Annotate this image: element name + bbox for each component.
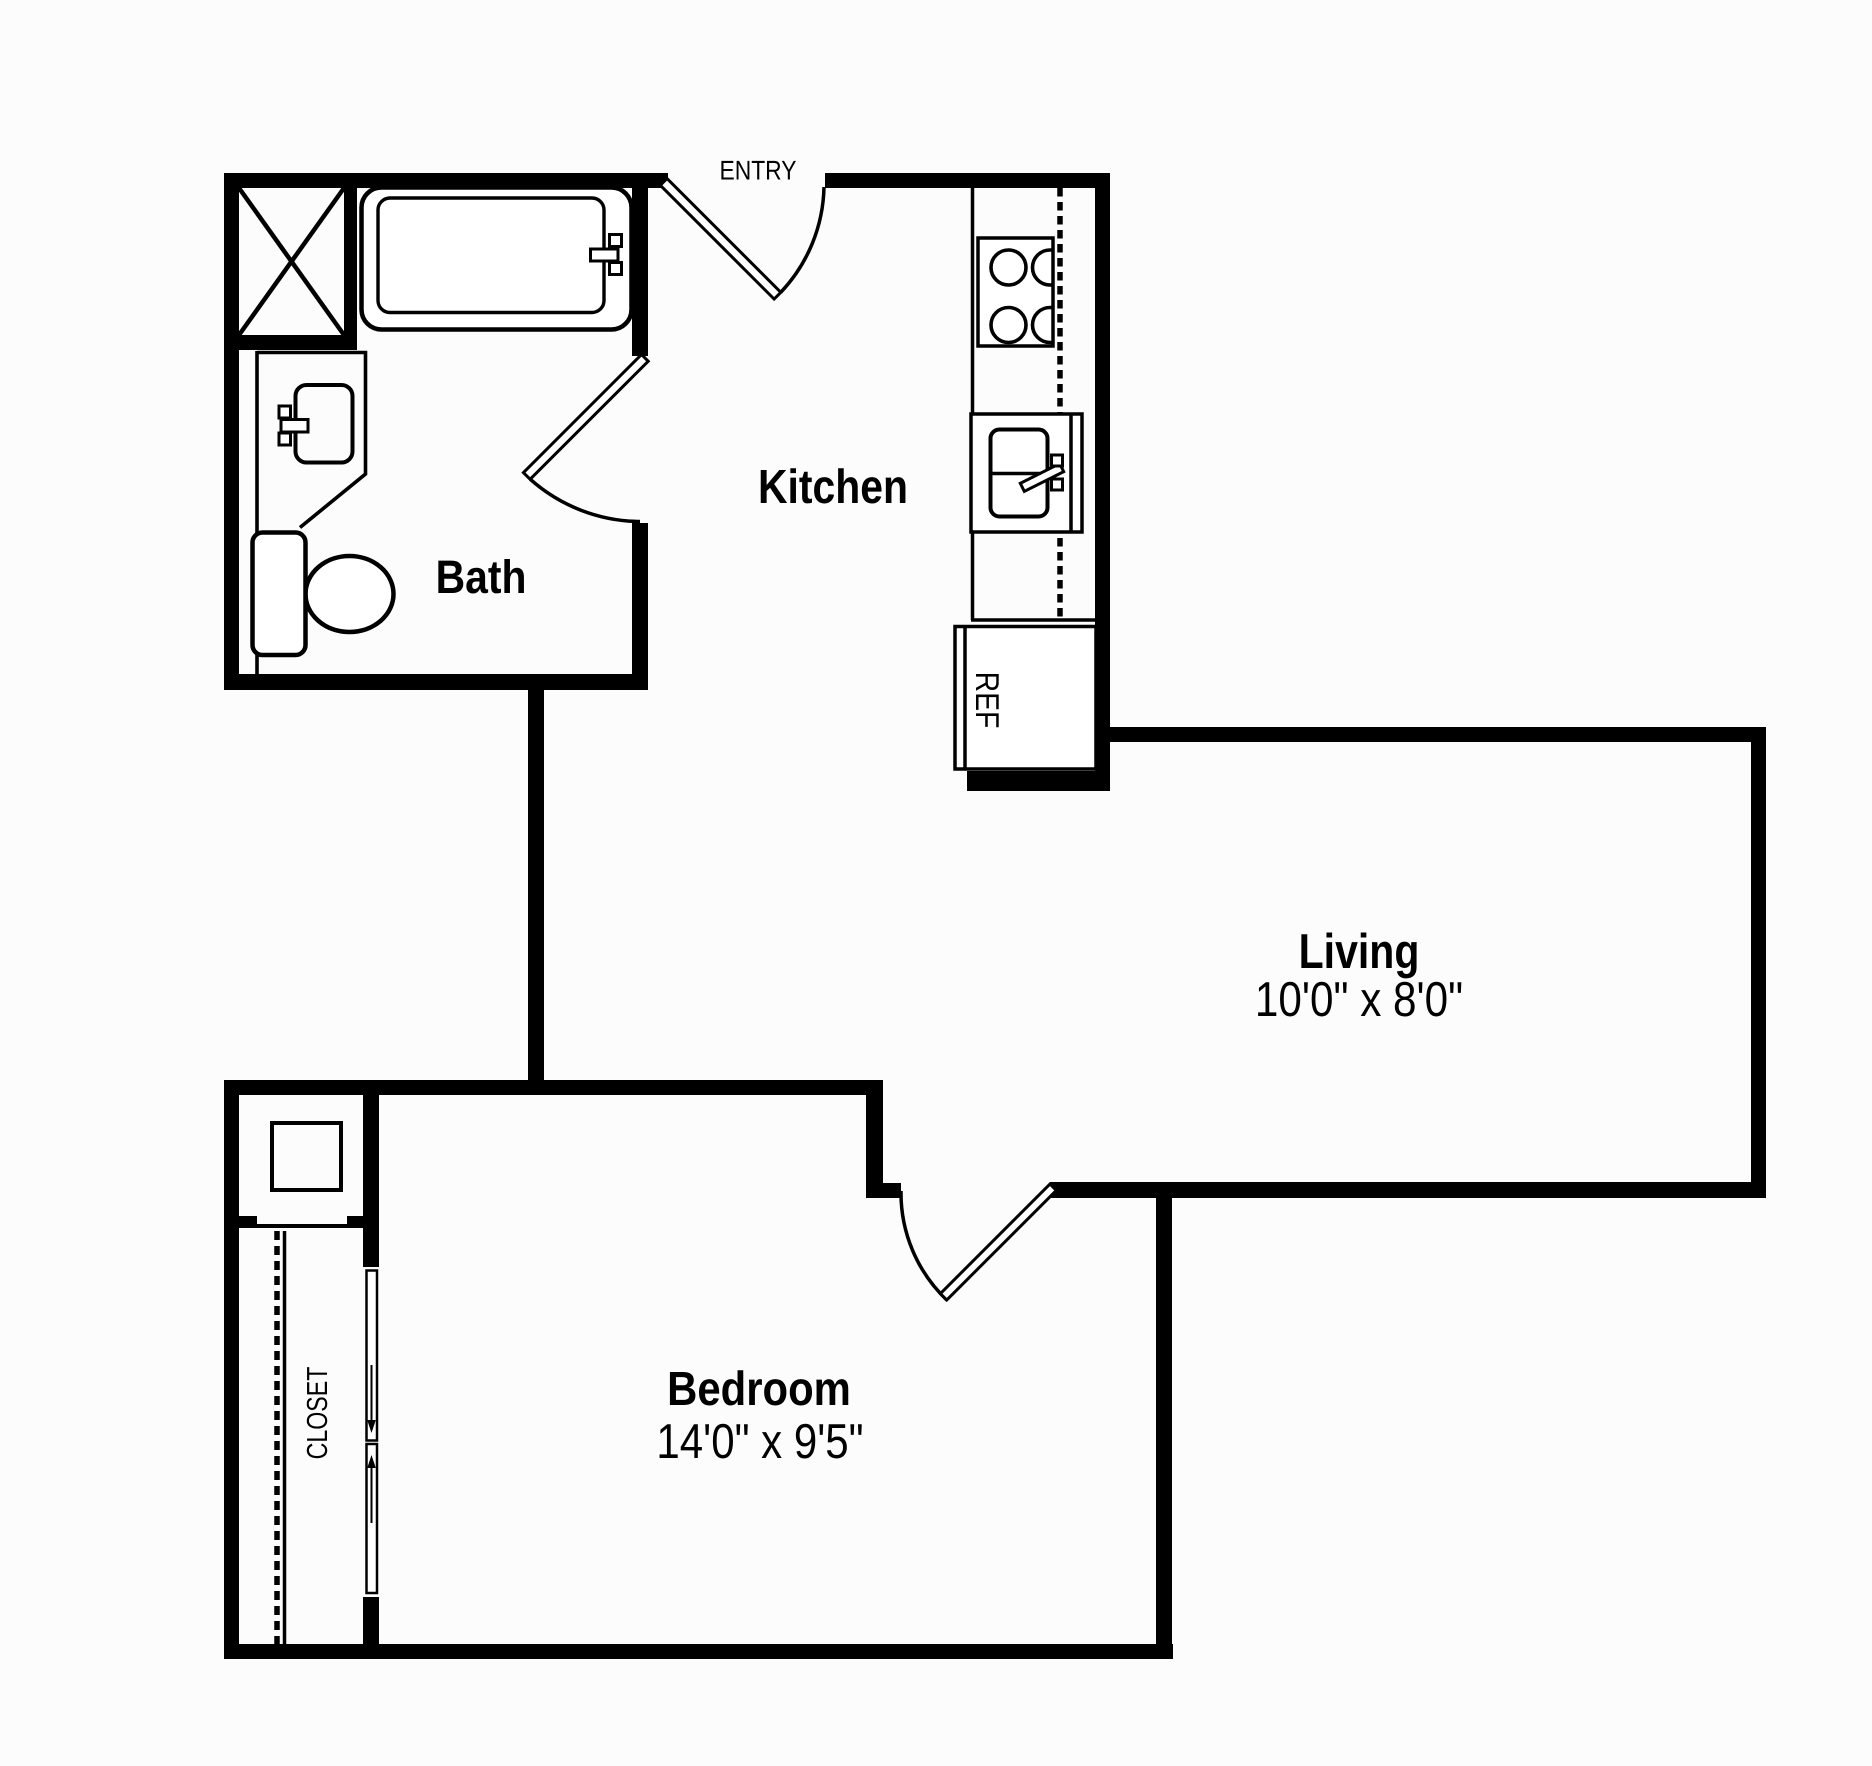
svg-text:REF: REF bbox=[969, 672, 1006, 729]
svg-text:Kitchen: Kitchen bbox=[758, 461, 908, 514]
svg-text:CLOSET: CLOSET bbox=[302, 1366, 334, 1459]
svg-text:Bedroom: Bedroom bbox=[667, 1363, 851, 1416]
svg-text:Bath: Bath bbox=[436, 550, 527, 603]
svg-text:10'0" x 8'0": 10'0" x 8'0" bbox=[1255, 973, 1463, 1027]
svg-text:ENTRY: ENTRY bbox=[719, 156, 796, 186]
svg-text:Living: Living bbox=[1299, 925, 1420, 979]
svg-text:14'0" x 9'5": 14'0" x 9'5" bbox=[656, 1415, 863, 1469]
